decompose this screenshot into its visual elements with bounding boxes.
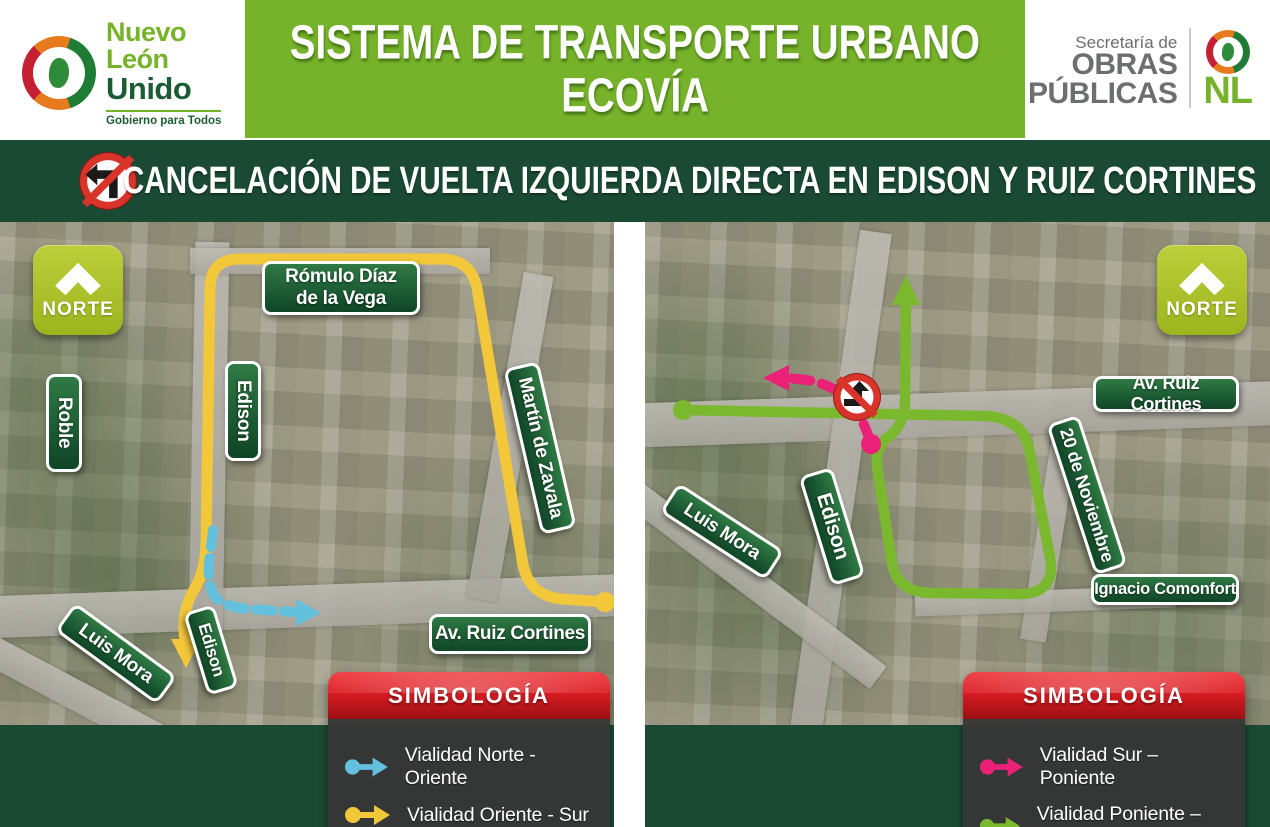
legend-right-body: Vialidad Sur – Poniente Vialidad Ponient…: [963, 719, 1245, 827]
legend-right-title: SIMBOLOGÍA: [963, 683, 1245, 709]
sign-label-line2: de la Vega: [296, 288, 386, 310]
north-badge-left: NORTE: [33, 245, 123, 335]
north-chevron-icon: [52, 259, 104, 297]
obras-publicas-logo: Secretaría de OBRAS PÚBLICAS NL: [1028, 28, 1252, 108]
legend-item-sur-poniente: Vialidad Sur – Poniente: [979, 744, 1229, 790]
legend-label: Vialidad Norte - Oriente: [405, 744, 594, 790]
street-sign-romulo-diaz: Rómulo Díaz de la Vega: [262, 261, 420, 315]
route-blue-arrowhead: [296, 599, 321, 626]
legend-right-header: SIMBOLOGÍA: [963, 672, 1245, 719]
agency-divider: [1189, 28, 1191, 108]
sign-label-line1: Rómulo Díaz: [285, 266, 397, 288]
page-title-line2: ECOVÍA: [561, 68, 709, 122]
street-sign-roble: Roble: [46, 374, 82, 472]
logo-line1: Nuevo: [106, 19, 221, 46]
legend-left-header: SIMBOLOGÍA: [328, 672, 610, 719]
north-label-right: NORTE: [1166, 299, 1238, 321]
agency-line2: PÚBLICAS: [1028, 80, 1177, 109]
sign-label: Av. Ruiz Cortines: [1096, 373, 1236, 414]
blue-arrow-icon: [344, 755, 390, 779]
nl-emblem-icon: [1206, 30, 1250, 74]
route-green-arrowhead: [892, 275, 920, 305]
north-label-left: NORTE: [42, 299, 114, 321]
page-title-line1: SISTEMA DE TRANSPORTE URBANO: [290, 16, 980, 70]
nuevo-leon-emblem-icon: [22, 36, 96, 110]
ecovia-notice-page: Nuevo León Unido Gobierno para Todos SIS…: [0, 0, 1270, 827]
notice-banner: CANCELACIÓN DE VUELTA IZQUIERDA DIRECTA …: [0, 140, 1270, 222]
agency-abbr: NL: [1203, 74, 1252, 108]
sign-label: Edison: [232, 380, 254, 442]
legend-item-norte-oriente: Vialidad Norte - Oriente: [344, 744, 594, 790]
agency-nl-block: NL: [1203, 30, 1252, 108]
green-arrow-icon: [979, 814, 1022, 827]
logo-tagline: Gobierno para Todos: [106, 110, 221, 128]
banner-text: CANCELACIÓN DE VUELTA IZQUIERDA DIRECTA …: [123, 160, 1257, 203]
legend-item-oriente-sur: Vialidad Oriente - Sur: [344, 803, 594, 827]
legend-label: Vialidad Sur – Poniente: [1040, 744, 1229, 790]
logo-text: Nuevo León Unido Gobierno para Todos: [106, 19, 221, 128]
street-sign-edison-upper-left: Edison: [225, 361, 261, 461]
no-left-turn-sign-icon: [833, 373, 881, 421]
route-pink-start-dot: [861, 434, 881, 454]
street-sign-ruiz-cortines-left: Av. Ruiz Cortines: [429, 614, 591, 654]
banner-text-wrap: CANCELACIÓN DE VUELTA IZQUIERDA DIRECTA …: [150, 140, 1230, 222]
north-badge-right: NORTE: [1157, 245, 1247, 335]
map-panel-right: NORTE Av. Ruiz Cortines Luis Mora Edison…: [645, 222, 1270, 827]
logo-line3: Unido: [106, 73, 221, 104]
legend-left-body: Vialidad Norte - Oriente Vialidad Orient…: [328, 719, 610, 827]
title-block: SISTEMA DE TRANSPORTE URBANO ECOVÍA: [245, 0, 1025, 138]
agency-text: Secretaría de OBRAS PÚBLICAS: [1028, 35, 1177, 108]
pink-arrow-icon: [979, 755, 1025, 779]
maps-area: NORTE Roble Edison Rómulo Díaz de la Veg…: [0, 222, 1270, 827]
legend-left: SIMBOLOGÍA Vialidad Norte - Oriente: [328, 672, 610, 827]
route-pink-arrowhead: [763, 365, 789, 391]
route-blue-path: [209, 530, 293, 612]
street-sign-ruiz-cortines-right: Av. Ruiz Cortines: [1093, 376, 1239, 412]
legend-left-title: SIMBOLOGÍA: [328, 683, 610, 709]
legend-item-poniente-norte: Vialidad Poniente – Norte: [979, 803, 1229, 827]
map-panel-left: NORTE Roble Edison Rómulo Díaz de la Veg…: [0, 222, 614, 827]
legend-label: Vialidad Poniente – Norte: [1037, 803, 1229, 827]
street-sign-ignacio-comonfort: Ignacio Comonfort: [1091, 574, 1239, 605]
page-header: Nuevo León Unido Gobierno para Todos SIS…: [0, 0, 1270, 140]
legend-right: SIMBOLOGÍA Vialidad Sur – Poniente: [963, 672, 1245, 827]
sign-label: Roble: [53, 397, 75, 448]
north-chevron-icon: [1176, 259, 1228, 297]
logo-line2: León: [106, 46, 221, 73]
agency-line1: OBRAS: [1028, 51, 1177, 80]
sign-label: Ignacio Comonfort: [1094, 580, 1236, 599]
nuevo-leon-logo: Nuevo León Unido Gobierno para Todos: [22, 18, 232, 128]
sign-label: Av. Ruiz Cortines: [435, 623, 585, 645]
yellow-arrow-icon: [344, 803, 392, 827]
legend-label: Vialidad Oriente - Sur: [407, 804, 589, 827]
